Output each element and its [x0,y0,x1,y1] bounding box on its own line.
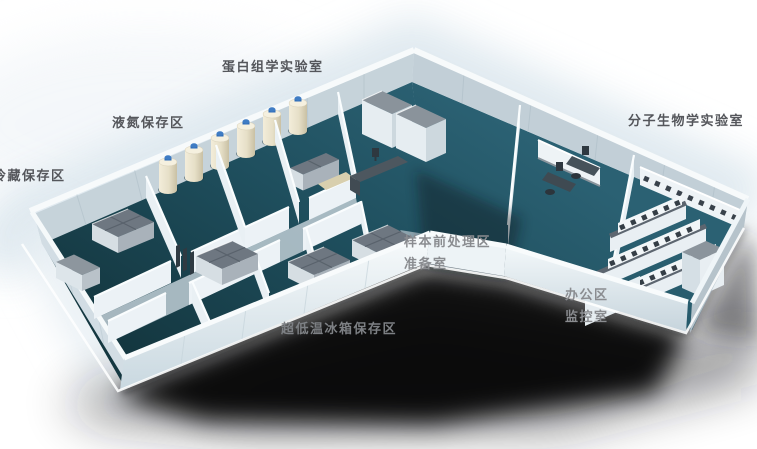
lab-floorplan-figure: 蛋白组学实验室 液氮保存区 冷藏保存区 分子生物学实验室 样本前处理区 准备室 … [0,0,757,449]
lab-3d-render [0,0,757,449]
